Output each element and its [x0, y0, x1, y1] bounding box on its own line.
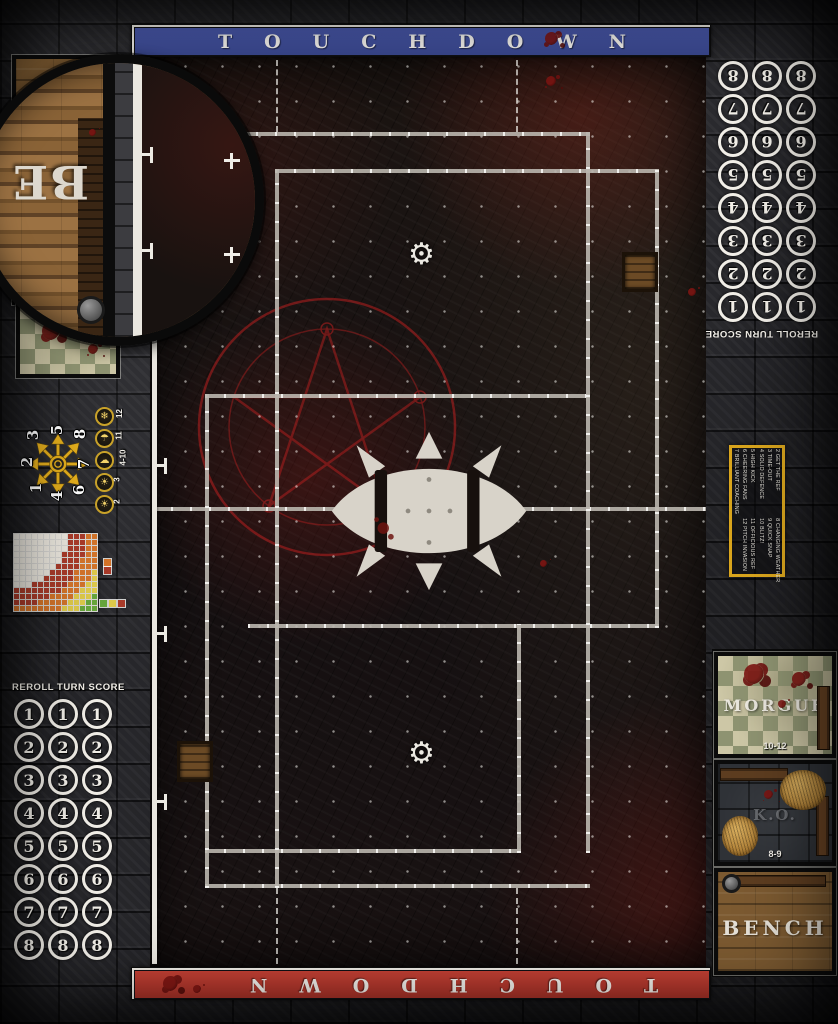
range-cell [50, 576, 55, 581]
sideline-tick [164, 626, 167, 642]
range-cell [38, 546, 43, 551]
range-cell [14, 600, 19, 605]
sideline-tick [150, 243, 153, 259]
range-cell [68, 606, 73, 611]
score-track-header: REROLL TURN SCORE [12, 682, 114, 693]
dashed-wide-zone-line [516, 888, 518, 964]
range-cell [20, 606, 25, 611]
sunny-icon: ☀ [95, 473, 114, 492]
score-circle-1: 1 [14, 699, 44, 729]
range-cell [14, 582, 19, 587]
range-cell [86, 546, 91, 551]
score-circle-1: 1 [786, 292, 816, 322]
range-legend-swatch [109, 600, 116, 607]
score-track-right: REROLL TURN SCORE 1112223334445556667778… [716, 60, 818, 339]
range-cell [32, 606, 37, 611]
range-cell [92, 594, 97, 599]
range-cell [62, 582, 67, 587]
range-cell [74, 534, 79, 539]
weather-entry: ☀3 [95, 472, 129, 494]
range-cell [74, 570, 79, 575]
range-cell [86, 570, 91, 575]
kickoff-table: 2 GET THE REF3 TIME-OUT4 SOLID DEFENCE5 … [729, 445, 785, 577]
range-cell [92, 534, 97, 539]
range-cell [56, 546, 61, 551]
kickoff-column: 8 CHANGING WEATHER9 QUICK SNAP10 BLITZ!1… [733, 518, 781, 582]
range-cell [38, 570, 43, 575]
range-cell [86, 540, 91, 545]
range-cell [74, 582, 79, 587]
weather-track: ❄12☂11☁4-10☀3☀2 [95, 406, 129, 516]
morgue-range: 10-12 [718, 741, 832, 751]
kickoff-entry: 10 BLITZ! [756, 518, 764, 582]
score-circle-3: 3 [82, 765, 112, 795]
score-circle-6: 6 [786, 127, 816, 157]
score-circle-1: 1 [48, 699, 78, 729]
range-cell [38, 600, 43, 605]
kickoff-entry: 3 TIME-OUT [765, 449, 773, 514]
range-cell [32, 558, 37, 563]
kickoff-entry: 9 QUICK SNAP [765, 518, 773, 582]
range-cell [14, 558, 19, 563]
blood-bowl-pitch-mat: ⚙ ⚙ TOUCHDOWN TOUCHDOWN BE [0, 0, 838, 1024]
score-circle-5: 5 [14, 831, 44, 861]
range-cell [62, 552, 67, 557]
range-cell [92, 582, 97, 587]
range-cell [44, 552, 49, 557]
range-cell [50, 546, 55, 551]
range-cell [32, 564, 37, 569]
range-cell [56, 564, 61, 569]
score-circle-8: 8 [718, 61, 748, 91]
range-cell [20, 576, 25, 581]
range-cell [80, 540, 85, 545]
zone-line [586, 132, 590, 853]
range-cell [44, 564, 49, 569]
range-cell [26, 582, 31, 587]
score-circle-6: 6 [718, 127, 748, 157]
blood-splatter [540, 560, 547, 567]
score-circle-8: 8 [786, 61, 816, 91]
pitch-magnified [142, 63, 255, 337]
weather-value: 4-10 [119, 449, 128, 465]
zone-line [205, 394, 209, 888]
score-track-header: REROLL TURN SCORE [716, 328, 818, 339]
range-cell [26, 588, 31, 593]
scatter-number-1: 1 [27, 483, 45, 493]
range-cell [14, 594, 19, 599]
range-cell [68, 558, 73, 563]
dashed-wide-zone-line [276, 888, 278, 964]
range-cell [80, 546, 85, 551]
touchdown-text-top: TOUCHDOWN [218, 31, 658, 53]
range-cell [44, 582, 49, 587]
crate [177, 741, 213, 782]
range-cell [20, 552, 25, 557]
magnifier-inset: BE [0, 54, 264, 346]
grid-cross [230, 153, 233, 169]
score-circle-8: 8 [48, 930, 78, 960]
scatter-number-8: 8 [71, 429, 89, 439]
score-circle-4: 4 [14, 798, 44, 828]
range-cell [44, 594, 49, 599]
dugout-morgue: MORGUE 10-12 [714, 652, 836, 758]
range-cell [56, 588, 61, 593]
range-cell [44, 606, 49, 611]
range-cell [32, 534, 37, 539]
scatter-number-4: 4 [48, 491, 66, 501]
range-cell [20, 534, 25, 539]
score-circle-2: 2 [786, 259, 816, 289]
morgue-label: MORGUE [718, 696, 832, 715]
range-cell [38, 588, 43, 593]
dugout-bench: BENCH [714, 868, 836, 975]
range-cell [44, 588, 49, 593]
range-cell [50, 558, 55, 563]
score-circle-2: 2 [48, 732, 78, 762]
range-cell [56, 540, 61, 545]
blood-splatter [688, 288, 696, 296]
range-cell [68, 600, 73, 605]
range-cell [56, 606, 61, 611]
weather-entry: ☀2 [95, 494, 129, 516]
score-circle-2: 2 [82, 732, 112, 762]
range-cell [92, 600, 97, 605]
range-cell [26, 606, 31, 611]
range-cell [44, 540, 49, 545]
range-cell [50, 534, 55, 539]
range-cell [14, 546, 19, 551]
score-circle-6: 6 [14, 864, 44, 894]
range-cell [80, 606, 85, 611]
range-legend-bottom [100, 600, 125, 608]
blood-splatter [89, 129, 96, 136]
range-cell [44, 570, 49, 575]
score-circle-1: 1 [82, 699, 112, 729]
blood-splatter [778, 700, 786, 708]
bench-knob [77, 296, 105, 324]
sideline-tick [164, 458, 167, 474]
range-cell [68, 552, 73, 557]
range-cell [68, 576, 73, 581]
range-cell [20, 600, 25, 605]
score-circle-1: 1 [718, 292, 748, 322]
score-circle-6: 6 [82, 864, 112, 894]
range-cell [62, 570, 67, 575]
weather-entry: ❄12 [95, 406, 129, 428]
sideline-tick [164, 794, 167, 810]
score-circle-3: 3 [718, 226, 748, 256]
bench-label: BENCH [718, 916, 832, 940]
kickoff-entry: 2 GET THE REF [773, 449, 781, 514]
range-cell [74, 564, 79, 569]
rain-icon: ☂ [95, 429, 114, 448]
range-cell [74, 552, 79, 557]
range-cell [38, 606, 43, 611]
range-cell [50, 600, 55, 605]
score-circle-7: 7 [786, 94, 816, 124]
zone-line [275, 169, 659, 173]
zone-line [205, 849, 521, 853]
dugout-frame [103, 63, 115, 337]
kickoff-column: 2 GET THE REF3 TIME-OUT4 SOLID DEFENCE5 … [733, 449, 781, 514]
range-cell [20, 540, 25, 545]
range-cell [68, 534, 73, 539]
range-cell [14, 552, 19, 557]
range-cell [92, 588, 97, 593]
score-circle-3: 3 [48, 765, 78, 795]
score-circle-7: 7 [14, 897, 44, 927]
score-circle-2: 2 [14, 732, 44, 762]
range-cell [14, 534, 19, 539]
range-cell [20, 546, 25, 551]
blood-splatter [88, 344, 98, 354]
range-cell [56, 600, 61, 605]
kickoff-entry: 5 HIGH KICK [748, 449, 756, 514]
kickoff-entry: 11 OFFICIOUS REF [748, 518, 756, 582]
range-cell [62, 564, 67, 569]
weather-value: 11 [115, 431, 124, 439]
range-cell [38, 540, 43, 545]
range-cell [86, 558, 91, 563]
range-cell [62, 576, 67, 581]
range-legend-swatch [100, 600, 107, 607]
blood-splatter [193, 985, 201, 993]
range-legend-swatch [104, 559, 111, 566]
range-cell [92, 546, 97, 551]
range-cell [86, 582, 91, 587]
range-cell [26, 600, 31, 605]
range-cell [14, 540, 19, 545]
range-cell [68, 546, 73, 551]
kickoff-entry: 6 CHEERING FANS [740, 449, 748, 514]
range-cell [20, 582, 25, 587]
range-cell [56, 558, 61, 563]
sideline-tick [150, 147, 153, 163]
scatter-number-5: 5 [48, 425, 66, 435]
range-cell [86, 564, 91, 569]
range-cell [68, 594, 73, 599]
range-cell [50, 564, 55, 569]
end-line-top [237, 132, 590, 136]
range-cell [44, 558, 49, 563]
range-cell [62, 540, 67, 545]
range-cell [32, 594, 37, 599]
range-cell [80, 534, 85, 539]
range-cell [80, 552, 85, 557]
scatter-number-7: 7 [75, 459, 93, 469]
range-cell [74, 546, 79, 551]
wood-plank [817, 686, 830, 750]
range-cell [38, 576, 43, 581]
range-cell [62, 546, 67, 551]
range-cell [92, 570, 97, 575]
scatter-template: 12345678 [20, 424, 98, 508]
hay-pile [780, 770, 826, 810]
score-circle-8: 8 [752, 61, 782, 91]
range-cell [62, 600, 67, 605]
touchdown-banner-bottom: TOUCHDOWN [131, 967, 711, 1000]
range-cell [32, 600, 37, 605]
range-cell [14, 576, 19, 581]
kickoff-entry: 12 PITCH INVASION [740, 518, 748, 582]
range-cell [80, 576, 85, 581]
range-cell [92, 540, 97, 545]
range-cell [26, 570, 31, 575]
range-cell [38, 558, 43, 563]
range-cell [68, 582, 73, 587]
range-cell [68, 588, 73, 593]
range-cell [44, 576, 49, 581]
scatter-number-2: 2 [18, 457, 36, 467]
dashed-wide-zone-line [516, 60, 518, 132]
blood-splatter [546, 76, 556, 86]
score-circle-8: 8 [82, 930, 112, 960]
kickoff-entry: 4 SOLID DEFENCE [756, 449, 764, 514]
range-cell [14, 564, 19, 569]
range-cell [38, 564, 43, 569]
sweltering-heat-icon: ☀ [95, 495, 114, 514]
range-cell [32, 582, 37, 587]
range-ruler-chart [13, 533, 98, 612]
range-cell [14, 588, 19, 593]
touchdown-banner-top: TOUCHDOWN [131, 24, 711, 57]
grid-cross [230, 247, 233, 263]
range-cell [26, 564, 31, 569]
score-circle-7: 7 [48, 897, 78, 927]
range-cell [32, 552, 37, 557]
scatter-number-3: 3 [24, 430, 42, 440]
weather-entry: ☁4-10 [95, 450, 129, 472]
score-circle-5: 5 [752, 160, 782, 190]
range-cell [74, 576, 79, 581]
range-cell [74, 600, 79, 605]
zone-line [205, 394, 590, 398]
range-cell [86, 588, 91, 593]
blood-splatter [545, 32, 558, 45]
range-legend-right [104, 559, 111, 575]
score-circle-8: 8 [14, 930, 44, 960]
range-cell [50, 606, 55, 611]
range-cell [50, 582, 55, 587]
range-cell [74, 558, 79, 563]
range-cell [80, 570, 85, 575]
range-cell [86, 576, 91, 581]
score-circle-7: 7 [82, 897, 112, 927]
score-circle-6: 6 [48, 864, 78, 894]
range-cell [86, 552, 91, 557]
sideline-tick [142, 153, 150, 156]
range-cell [68, 540, 73, 545]
range-cell [44, 546, 49, 551]
range-cell [62, 558, 67, 563]
range-cell [80, 582, 85, 587]
range-cell [38, 534, 43, 539]
range-cell [74, 588, 79, 593]
touchdown-text-bottom: TOUCHDOWN [218, 974, 658, 996]
score-circle-4: 4 [82, 798, 112, 828]
gear-icon: ⚙ [408, 739, 435, 769]
sideline-tick [142, 249, 150, 252]
range-cell [26, 594, 31, 599]
range-cell [80, 600, 85, 605]
range-cell [50, 588, 55, 593]
range-cell [38, 594, 43, 599]
range-cell [26, 576, 31, 581]
dashed-wide-zone-line [276, 60, 278, 132]
range-cell [26, 552, 31, 557]
range-cell [80, 564, 85, 569]
score-circle-3: 3 [14, 765, 44, 795]
range-cell [20, 558, 25, 563]
range-cell [68, 570, 73, 575]
range-cell [92, 564, 97, 569]
range-cell [62, 594, 67, 599]
score-circle-2: 2 [752, 259, 782, 289]
range-cell [26, 558, 31, 563]
score-circle-3: 3 [752, 226, 782, 256]
range-cell [50, 540, 55, 545]
range-cell [50, 594, 55, 599]
range-legend-swatch [104, 567, 111, 574]
range-cell [56, 534, 61, 539]
bench-text-magnified: BE [0, 155, 89, 209]
range-cell [14, 570, 19, 575]
range-cell [20, 564, 25, 569]
range-cell [92, 606, 97, 611]
score-circle-5: 5 [48, 831, 78, 861]
blood-splatter [792, 672, 806, 686]
range-cell [86, 606, 91, 611]
range-cell [56, 552, 61, 557]
end-line-bottom [205, 884, 590, 888]
range-cell [92, 552, 97, 557]
range-cell [86, 600, 91, 605]
range-cell [62, 606, 67, 611]
range-cell [56, 582, 61, 587]
score-circle-5: 5 [82, 831, 112, 861]
score-circle-5: 5 [718, 160, 748, 190]
zone-line [655, 169, 659, 628]
range-cell [38, 552, 43, 557]
weather-value: 12 [115, 409, 124, 418]
partly-cloudy-icon: ☁ [95, 451, 114, 470]
range-cell [92, 576, 97, 581]
score-circle-6: 6 [752, 127, 782, 157]
crate [622, 252, 658, 292]
range-cell [32, 546, 37, 551]
wood-plank [720, 768, 788, 781]
score-circle-5: 5 [786, 160, 816, 190]
range-cell [68, 564, 73, 569]
range-cell [20, 570, 25, 575]
range-cell [14, 606, 19, 611]
score-circle-7: 7 [718, 94, 748, 124]
weather-entry: ☂11 [95, 428, 129, 450]
range-cell [56, 576, 61, 581]
range-cell [50, 552, 55, 557]
sideline-magnified [133, 63, 142, 337]
range-cell [44, 600, 49, 605]
range-cell [86, 534, 91, 539]
kickoff-entry: 8 CHANGING WEATHER [773, 518, 781, 582]
range-cell [80, 588, 85, 593]
range-cell [80, 594, 85, 599]
bench-knob [722, 874, 741, 893]
range-cell [56, 570, 61, 575]
range-legend-swatch [118, 600, 125, 607]
blood-splatter [764, 790, 773, 799]
